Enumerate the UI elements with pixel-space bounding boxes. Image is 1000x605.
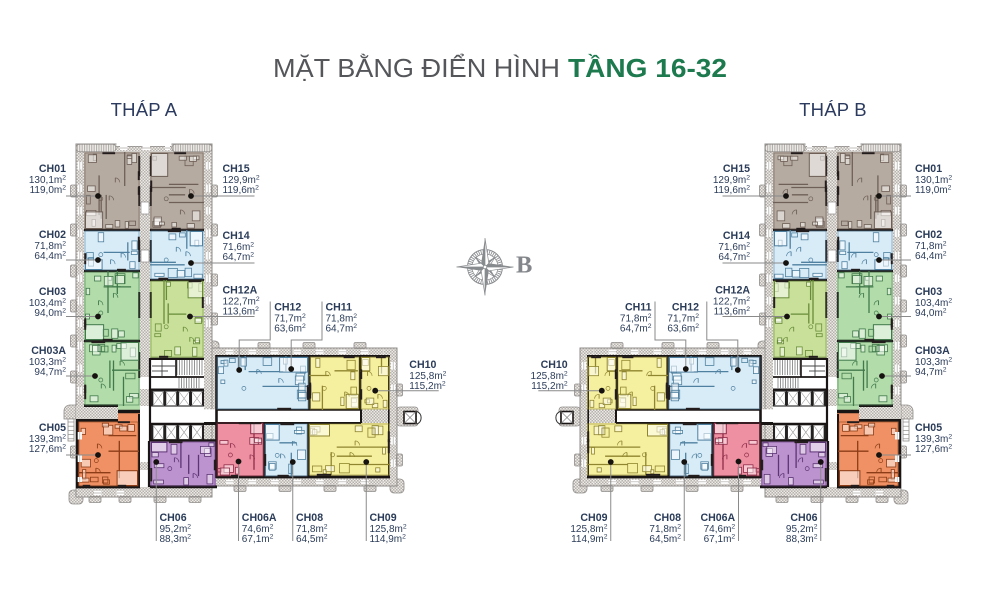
svg-text:64,4m2: 64,4m2 bbox=[915, 251, 947, 262]
svg-text:CH09: CH09 bbox=[580, 512, 607, 524]
svg-text:CH09: CH09 bbox=[370, 512, 397, 524]
svg-text:127,6m2: 127,6m2 bbox=[915, 444, 952, 455]
svg-text:CH11: CH11 bbox=[326, 301, 353, 313]
svg-text:114,9m2: 114,9m2 bbox=[370, 534, 407, 545]
svg-text:63,6m2: 63,6m2 bbox=[274, 323, 306, 334]
svg-text:CH15: CH15 bbox=[223, 163, 250, 175]
svg-text:119,0m2: 119,0m2 bbox=[30, 185, 67, 196]
svg-text:CH12A: CH12A bbox=[223, 285, 258, 297]
svg-text:CH05: CH05 bbox=[39, 422, 66, 434]
svg-text:64,7m2: 64,7m2 bbox=[326, 323, 358, 334]
svg-text:CH10: CH10 bbox=[409, 359, 436, 371]
svg-text:64,7m2: 64,7m2 bbox=[718, 252, 750, 263]
svg-text:CH11: CH11 bbox=[625, 301, 652, 313]
svg-text:94,7m2: 94,7m2 bbox=[915, 367, 947, 378]
svg-text:CH08: CH08 bbox=[654, 512, 681, 524]
svg-text:94,0m2: 94,0m2 bbox=[34, 308, 66, 319]
svg-text:63,6m2: 63,6m2 bbox=[667, 323, 699, 334]
svg-text:64,5m2: 64,5m2 bbox=[649, 534, 681, 545]
svg-text:CH08: CH08 bbox=[296, 512, 323, 524]
svg-text:88,3m2: 88,3m2 bbox=[786, 534, 818, 545]
svg-text:64,4m2: 64,4m2 bbox=[34, 251, 66, 262]
svg-text:119,6m2: 119,6m2 bbox=[714, 185, 751, 196]
svg-text:115,2m2: 115,2m2 bbox=[409, 381, 446, 392]
svg-text:TẦNG 16-32: TẦNG 16-32 bbox=[568, 54, 727, 83]
svg-text:88,3m2: 88,3m2 bbox=[160, 534, 192, 545]
svg-text:CH14: CH14 bbox=[223, 230, 250, 242]
svg-text:67,1m2: 67,1m2 bbox=[242, 534, 274, 545]
svg-text:64,5m2: 64,5m2 bbox=[296, 534, 328, 545]
svg-text:CH06A: CH06A bbox=[700, 512, 735, 524]
svg-text:THÁP B: THÁP B bbox=[799, 99, 867, 120]
svg-text:MẶT BẰNG ĐIỂN HÌNH: MẶT BẰNG ĐIỂN HÌNH bbox=[273, 54, 560, 83]
svg-text:67,1m2: 67,1m2 bbox=[704, 534, 736, 545]
svg-text:CH05: CH05 bbox=[915, 422, 942, 434]
svg-text:CH06: CH06 bbox=[160, 512, 187, 524]
svg-text:CH02: CH02 bbox=[39, 229, 66, 241]
svg-text:113,6m2: 113,6m2 bbox=[223, 306, 260, 317]
svg-text:113,6m2: 113,6m2 bbox=[714, 306, 751, 317]
svg-text:CH10: CH10 bbox=[541, 359, 568, 371]
svg-text:115,2m2: 115,2m2 bbox=[531, 381, 568, 392]
svg-text:CH03: CH03 bbox=[39, 286, 66, 298]
svg-text:CH14: CH14 bbox=[723, 230, 750, 242]
svg-text:CH06A: CH06A bbox=[242, 512, 277, 524]
svg-text:94,7m2: 94,7m2 bbox=[34, 367, 66, 378]
svg-text:CH12: CH12 bbox=[672, 301, 699, 313]
svg-text:119,6m2: 119,6m2 bbox=[223, 185, 260, 196]
svg-text:CH12A: CH12A bbox=[715, 285, 750, 297]
svg-text:CH03A: CH03A bbox=[915, 345, 950, 357]
svg-text:64,7m2: 64,7m2 bbox=[223, 252, 255, 263]
svg-text:CH06: CH06 bbox=[790, 512, 817, 524]
svg-text:127,6m2: 127,6m2 bbox=[29, 444, 66, 455]
svg-text:64,7m2: 64,7m2 bbox=[620, 323, 652, 334]
svg-text:CH15: CH15 bbox=[723, 163, 750, 175]
svg-text:THÁP A: THÁP A bbox=[111, 99, 178, 120]
svg-text:CH01: CH01 bbox=[915, 163, 942, 175]
svg-text:CH12: CH12 bbox=[274, 301, 301, 313]
svg-text:114,9m2: 114,9m2 bbox=[571, 534, 608, 545]
svg-text:CH01: CH01 bbox=[39, 163, 66, 175]
svg-text:94,0m2: 94,0m2 bbox=[915, 308, 947, 319]
svg-text:119,0m2: 119,0m2 bbox=[915, 185, 952, 196]
svg-text:B: B bbox=[516, 252, 532, 279]
svg-text:CH03: CH03 bbox=[915, 286, 942, 298]
svg-text:CH02: CH02 bbox=[915, 229, 942, 241]
svg-text:CH03A: CH03A bbox=[31, 345, 66, 357]
